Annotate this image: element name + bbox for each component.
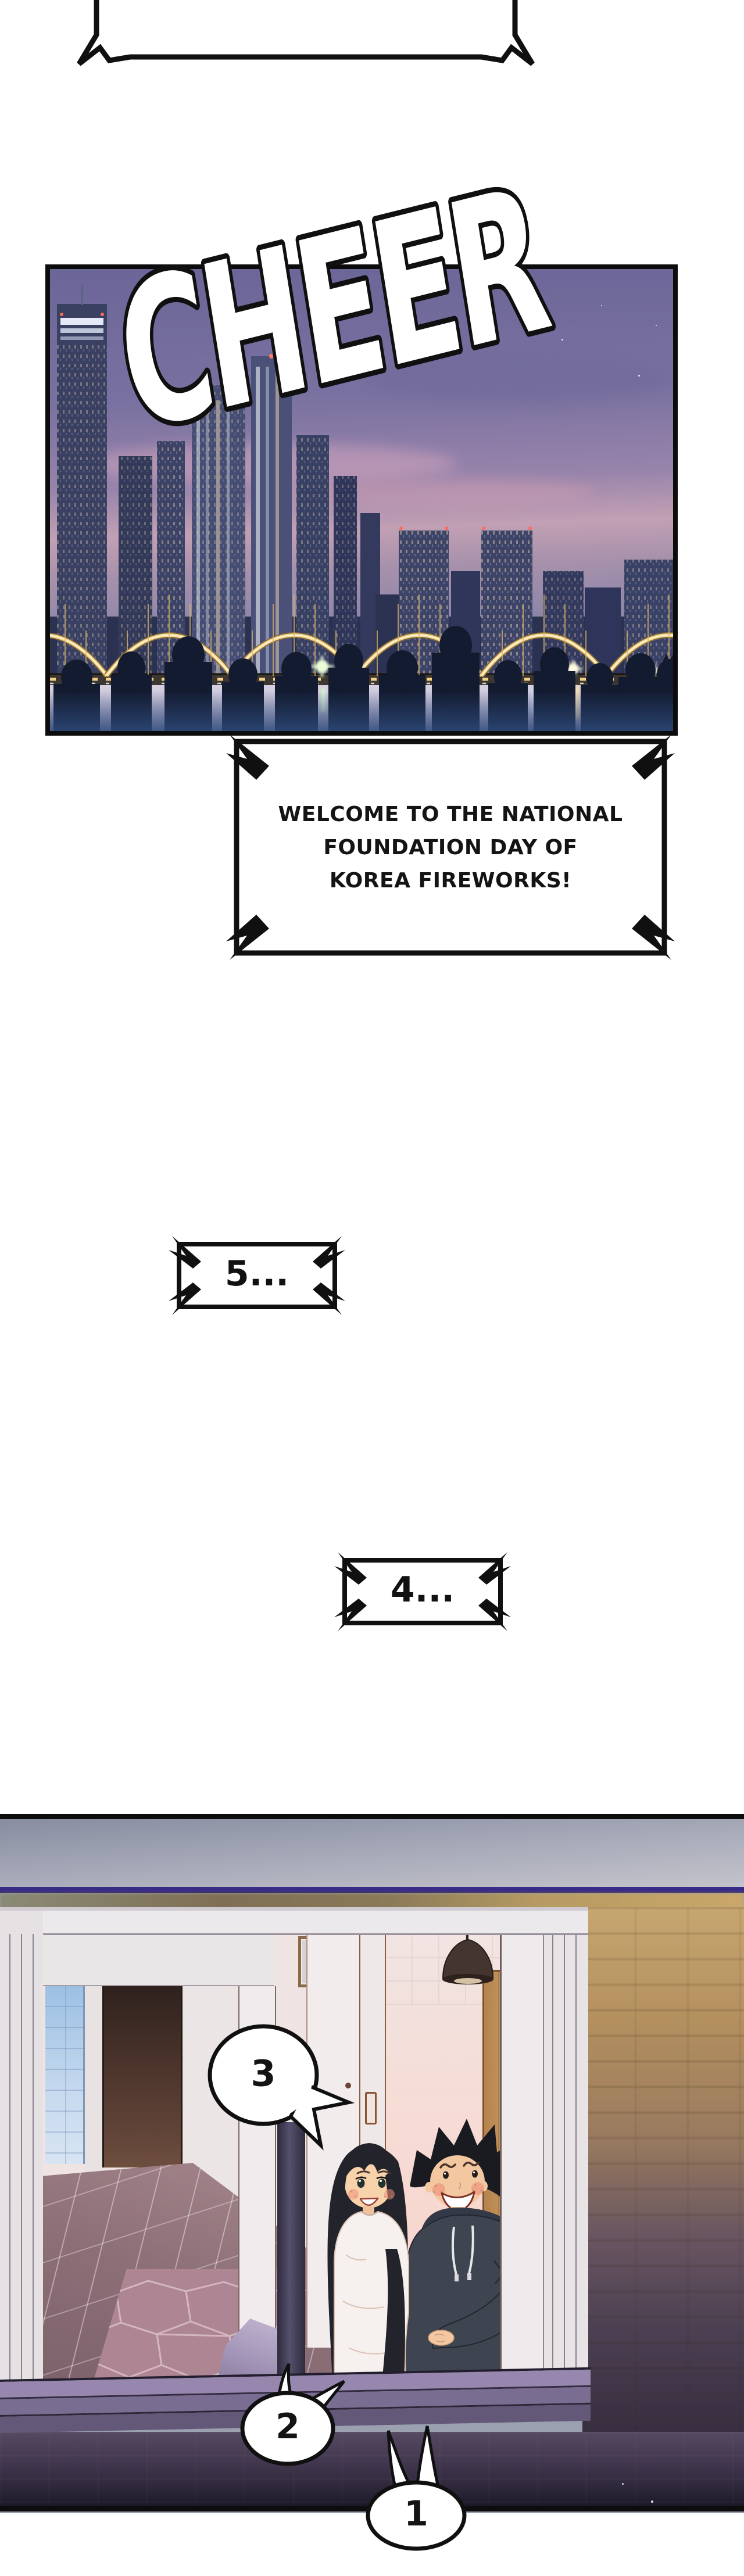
- panel-top-border: [0, 1814, 744, 1819]
- purple-rail: [0, 1887, 744, 1893]
- window-sash-bar: [277, 2122, 305, 2382]
- window-stile: [500, 1935, 544, 2382]
- stone-wall: [582, 1907, 744, 2432]
- countdown-3-text: 3: [251, 2052, 276, 2095]
- webtoon-page: CHEER WELCOME TO THE NATIONAL FOUNDATION…: [0, 0, 744, 2576]
- window-left-jamb: [0, 1911, 43, 2382]
- window-frame-top: [0, 1911, 588, 1935]
- countdown-4-text: 4...: [391, 1570, 455, 1610]
- dusk-sky: [0, 1819, 744, 1887]
- countdown-box-4: 4...: [330, 1545, 516, 1638]
- countdown-1-text: 1: [404, 2493, 428, 2534]
- welcome-line-3: KOREA FIREWORKS!: [330, 864, 571, 897]
- welcome-line-1: WELCOME TO THE NATIONAL: [278, 798, 623, 831]
- crowd-glow: [50, 691, 673, 731]
- speech-bubble-top-partial: [70, 0, 542, 79]
- girlfriend-figure: [327, 2143, 409, 2382]
- speech-bubble-1: 1: [355, 2399, 488, 2559]
- dark-column: [102, 1986, 183, 2167]
- countdown-2-text: 2: [276, 2406, 300, 2447]
- speech-bubble-3: 3: [199, 2016, 362, 2150]
- pendant-lamp: [435, 1935, 501, 1989]
- window-right-jamb: [544, 1935, 588, 2382]
- countdown-5-text: 5...: [225, 1253, 289, 1294]
- welcome-line-2: FOUNDATION DAY OF: [323, 831, 577, 864]
- sparkle: [651, 2500, 653, 2503]
- cheer-sfx: CHEER: [35, 169, 593, 471]
- countdown-box-5: 5...: [164, 1229, 350, 1322]
- blue-tile-wall: [45, 1986, 85, 2164]
- sparkle: [622, 2483, 624, 2485]
- cheer-text: CHEER: [105, 144, 560, 476]
- speech-bubble-welcome: WELCOME TO THE NATIONAL FOUNDATION DAY O…: [224, 730, 677, 993]
- speech-bubble-2: 2: [231, 2349, 359, 2474]
